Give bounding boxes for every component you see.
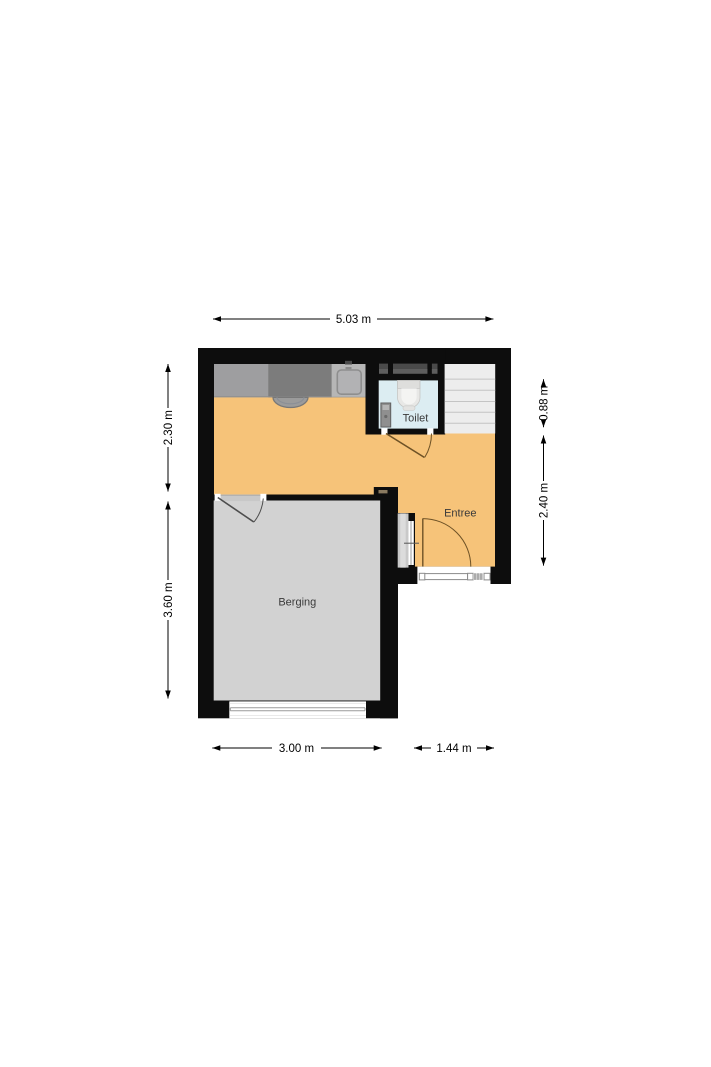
svg-text:2.30 m: 2.30 m (163, 410, 175, 445)
svg-text:Berging: Berging (278, 597, 316, 609)
svg-text:5.03 m: 5.03 m (336, 314, 371, 326)
svg-text:2.40 m: 2.40 m (539, 483, 551, 518)
svg-text:1.44 m: 1.44 m (436, 743, 471, 755)
svg-text:0.88 m: 0.88 m (539, 386, 551, 421)
svg-text:Toilet: Toilet (403, 413, 429, 425)
svg-text:3.60 m: 3.60 m (163, 582, 175, 617)
svg-text:3.00 m: 3.00 m (279, 743, 314, 755)
svg-text:Entree: Entree (444, 508, 476, 520)
